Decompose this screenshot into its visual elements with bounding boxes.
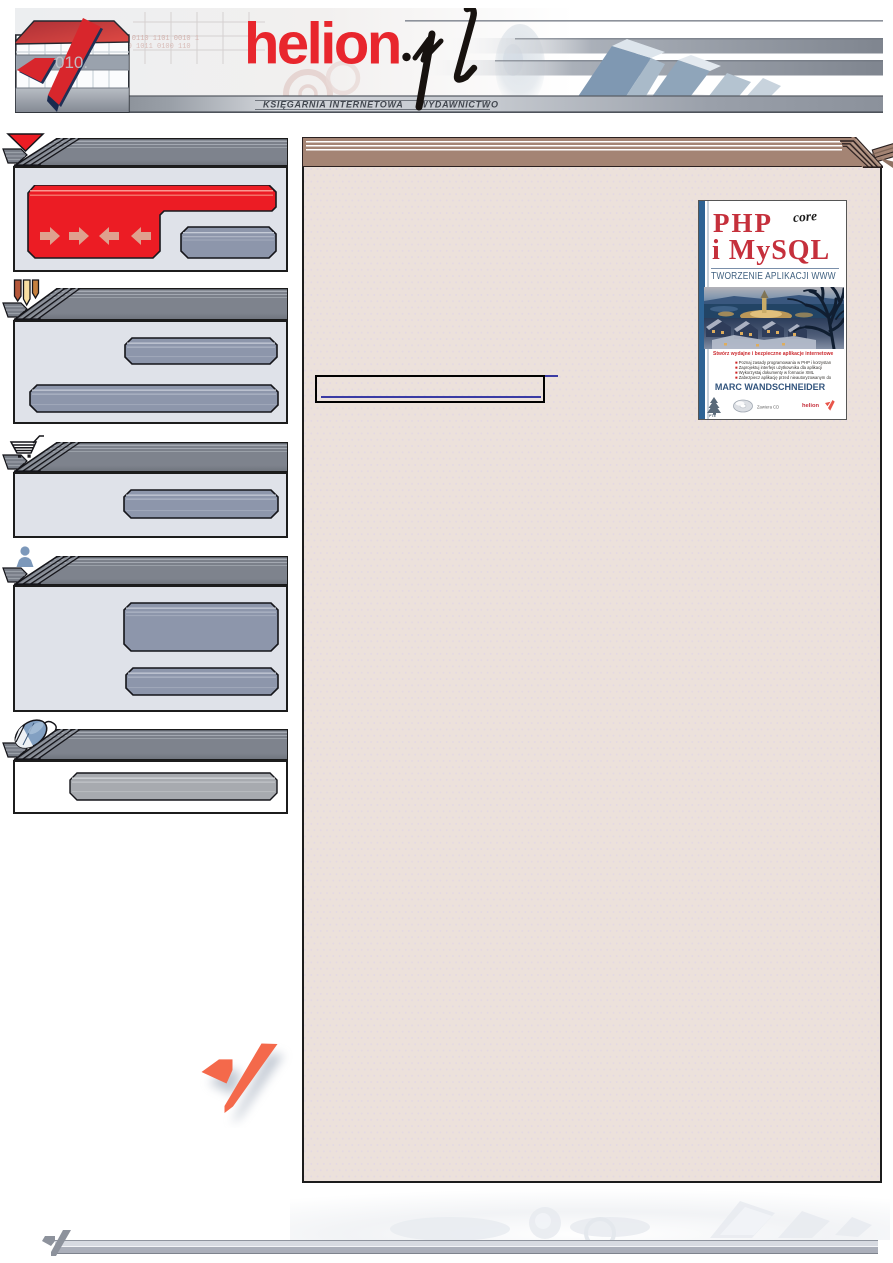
svg-text:Zawiera CD: Zawiera CD: [757, 405, 779, 410]
svg-text:010.: 010.: [55, 53, 88, 72]
svg-text:PTE: PTE: [709, 414, 717, 417]
svg-text:helion: helion: [802, 403, 820, 409]
svg-text:KSIĘGARNIA INTERNETOWA: KSIĘGARNIA INTERNETOWA: [263, 100, 403, 110]
svg-text:WYDAWNICTWO: WYDAWNICTWO: [419, 100, 499, 110]
svg-text:helion: helion: [244, 12, 400, 77]
